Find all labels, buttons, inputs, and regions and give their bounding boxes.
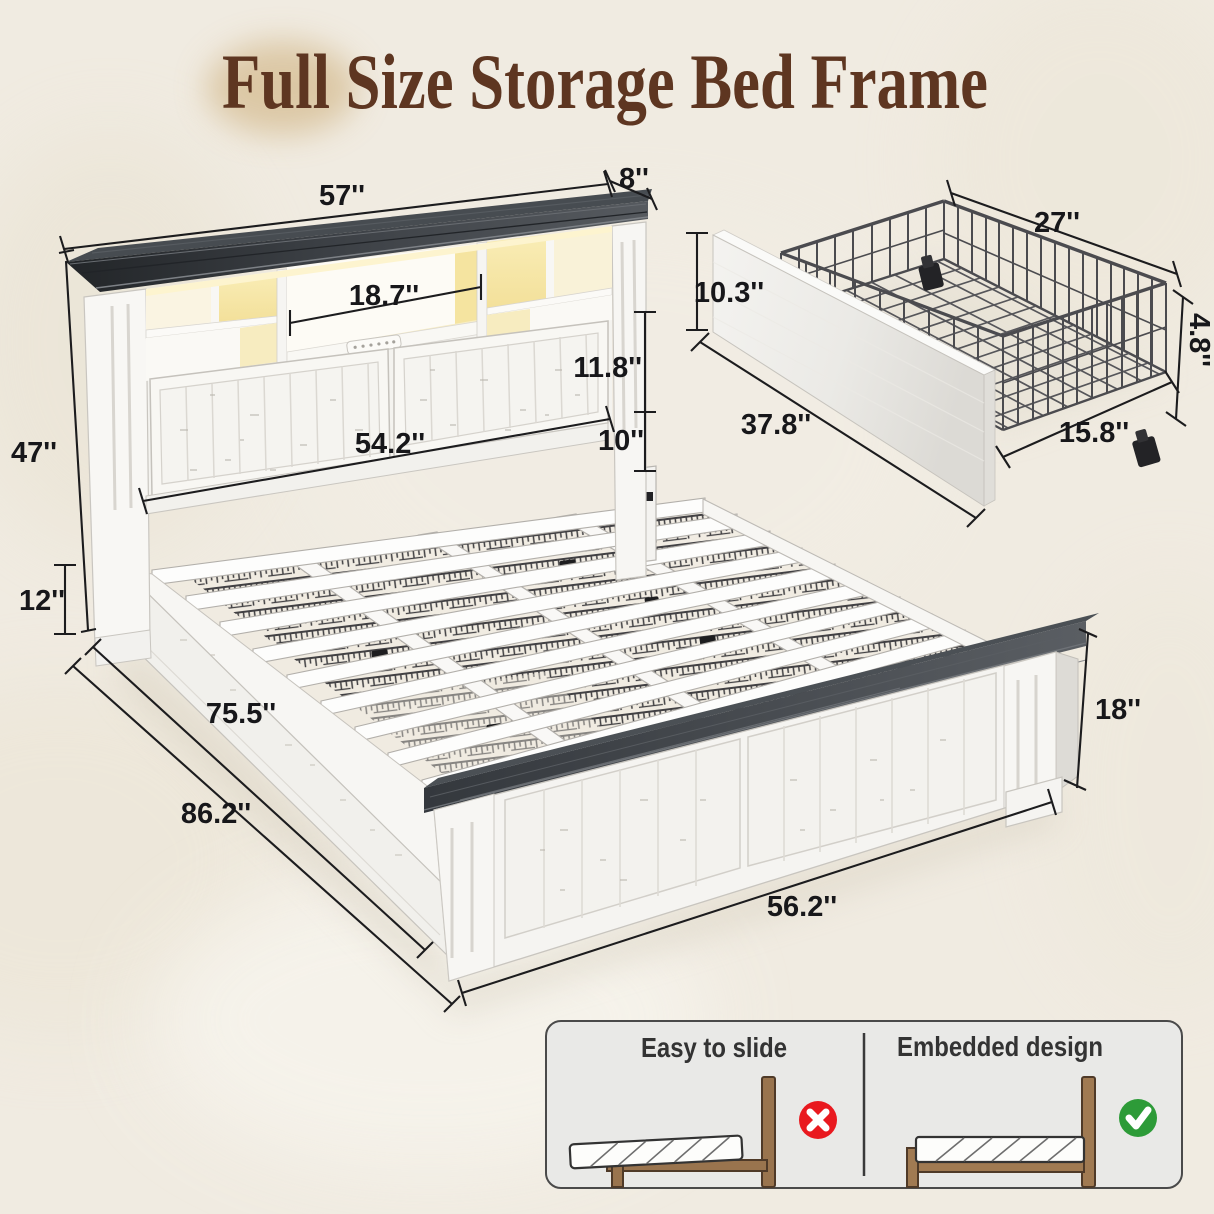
svg-text:54.2'': 54.2'' xyxy=(355,428,425,460)
svg-text:27'': 27'' xyxy=(1034,207,1080,239)
svg-text:57'': 57'' xyxy=(319,180,365,212)
svg-text:8'': 8'' xyxy=(619,163,649,195)
svg-text:86.2'': 86.2'' xyxy=(181,798,251,830)
svg-text:15.8'': 15.8'' xyxy=(1059,417,1129,449)
svg-text:Easy to slide: Easy to slide xyxy=(641,1032,787,1063)
svg-text:56.2'': 56.2'' xyxy=(767,891,837,923)
svg-text:18'': 18'' xyxy=(1095,694,1141,726)
svg-text:10'': 10'' xyxy=(598,425,644,457)
svg-text:10.3'': 10.3'' xyxy=(694,277,764,309)
svg-text:18.7'': 18.7'' xyxy=(349,280,419,312)
svg-text:11.8'': 11.8'' xyxy=(573,352,642,384)
svg-text:4.8'': 4.8'' xyxy=(1183,313,1214,367)
svg-text:Embedded design: Embedded design xyxy=(897,1031,1103,1062)
svg-text:Full Size Storage Bed Frame: Full Size Storage Bed Frame xyxy=(222,38,988,125)
svg-text:47'': 47'' xyxy=(11,437,57,469)
svg-text:75.5'': 75.5'' xyxy=(206,698,276,730)
svg-text:37.8'': 37.8'' xyxy=(741,409,811,441)
svg-text:12'': 12'' xyxy=(19,585,65,617)
